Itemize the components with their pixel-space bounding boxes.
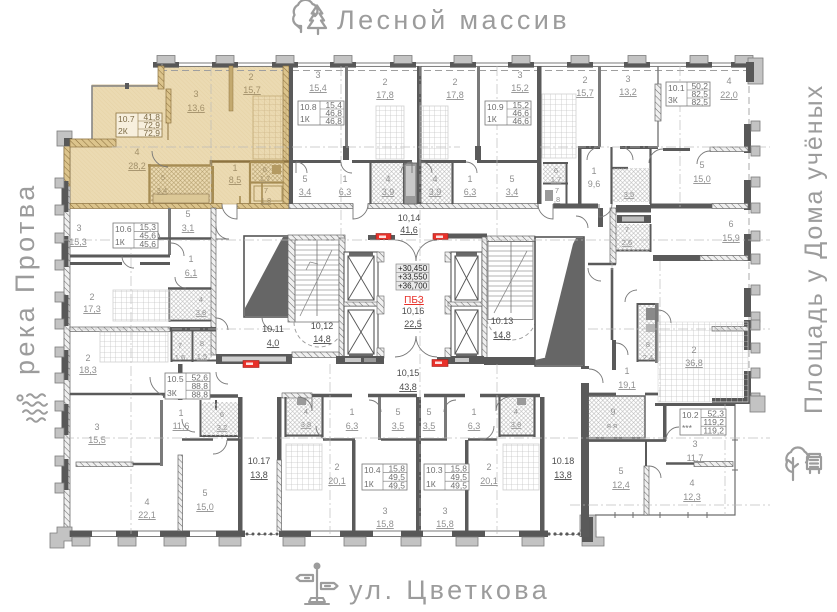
svg-text:1: 1 <box>342 174 347 184</box>
svg-text:1,7: 1,7 <box>551 175 561 184</box>
svg-text:1,7: 1,7 <box>260 174 270 183</box>
svg-text:13,8: 13,8 <box>250 470 268 480</box>
svg-text:11,7: 11,7 <box>687 453 704 463</box>
svg-text:22,1: 22,1 <box>138 510 156 520</box>
svg-text:3,1: 3,1 <box>182 223 195 233</box>
svg-text:10.1: 10.1 <box>668 83 685 93</box>
svg-text:3,8: 3,8 <box>196 308 206 317</box>
svg-text:3,5: 3,5 <box>624 190 634 199</box>
svg-text:10.13: 10.13 <box>491 316 514 326</box>
svg-text:20,1: 20,1 <box>328 476 346 486</box>
svg-text:4: 4 <box>726 76 731 86</box>
svg-text:2,6: 2,6 <box>622 238 632 247</box>
svg-text:1,5: 1,5 <box>197 352 207 361</box>
svg-text:3: 3 <box>315 70 320 80</box>
svg-text:119,2: 119,2 <box>703 426 724 436</box>
svg-text:6: 6 <box>554 166 558 175</box>
svg-text:46,8: 46,8 <box>325 116 342 126</box>
svg-text:5: 5 <box>202 488 207 498</box>
svg-text:36,8: 36,8 <box>685 358 703 368</box>
svg-text:4,0: 4,0 <box>267 338 280 348</box>
svg-text:1: 1 <box>624 366 629 376</box>
svg-text:+30,450: +30,450 <box>398 264 428 273</box>
svg-text:4: 4 <box>432 174 437 184</box>
svg-text:3: 3 <box>625 74 630 84</box>
svg-text:45,6: 45,6 <box>139 239 156 249</box>
svg-text:***: *** <box>682 423 693 433</box>
svg-text:11,6: 11,6 <box>173 421 190 431</box>
svg-text:1: 1 <box>471 407 476 417</box>
svg-text:28,2: 28,2 <box>128 161 146 171</box>
svg-text:9,6: 9,6 <box>588 179 601 189</box>
svg-text:3: 3 <box>692 439 697 449</box>
svg-text:3: 3 <box>76 223 81 233</box>
svg-text:4: 4 <box>689 478 694 488</box>
svg-text:6: 6 <box>728 219 733 229</box>
svg-text:1: 1 <box>232 163 237 173</box>
svg-text:1: 1 <box>178 408 183 418</box>
svg-text:3,8: 3,8 <box>301 420 311 429</box>
svg-text:3,4: 3,4 <box>299 187 312 197</box>
svg-text:82,5: 82,5 <box>691 97 708 107</box>
svg-text:15,0: 15,0 <box>196 502 214 512</box>
svg-text:2: 2 <box>582 75 587 85</box>
svg-text:8,5: 8,5 <box>229 175 242 185</box>
svg-text:15,2: 15,2 <box>511 83 529 93</box>
svg-text:10,15: 10,15 <box>397 368 420 378</box>
svg-text:2: 2 <box>89 292 94 302</box>
svg-text:3К: 3К <box>167 388 177 398</box>
svg-text:88,8: 88,8 <box>191 390 208 400</box>
svg-text:5: 5 <box>426 407 431 417</box>
svg-text:10.5: 10.5 <box>167 374 184 384</box>
svg-text:6,3: 6,3 <box>468 421 481 431</box>
svg-text:5: 5 <box>395 407 400 417</box>
svg-text:10,12: 10,12 <box>311 321 334 331</box>
svg-text:2: 2 <box>452 77 457 87</box>
svg-text:17,8: 17,8 <box>446 90 464 100</box>
svg-text:ул. Цветкова: ул. Цветкова <box>349 575 550 605</box>
svg-text:6,3: 6,3 <box>464 187 477 197</box>
svg-text:12,4: 12,4 <box>612 480 630 490</box>
svg-text:3,5: 3,5 <box>392 421 405 431</box>
svg-text:1: 1 <box>349 407 354 417</box>
svg-text:5: 5 <box>699 160 704 170</box>
svg-text:7: 7 <box>264 186 268 195</box>
svg-text:15,7: 15,7 <box>243 85 261 95</box>
svg-text:17,3: 17,3 <box>83 304 101 314</box>
svg-text:22,0: 22,0 <box>720 90 738 100</box>
svg-text:15,8: 15,8 <box>376 519 394 529</box>
svg-text:2: 2 <box>382 77 387 87</box>
svg-text:5: 5 <box>302 174 307 184</box>
svg-text:10.4: 10.4 <box>364 465 381 475</box>
svg-text:4: 4 <box>304 407 308 416</box>
svg-text:10.7: 10.7 <box>118 114 135 124</box>
svg-text:3: 3 <box>193 89 198 99</box>
svg-text:6: 6 <box>263 165 267 174</box>
svg-text:15,0: 15,0 <box>693 174 711 184</box>
svg-text:19,1: 19,1 <box>618 380 636 390</box>
svg-text:6,3: 6,3 <box>346 421 359 431</box>
svg-text:6,1: 6,1 <box>185 268 198 278</box>
svg-text:13,6: 13,6 <box>187 103 205 113</box>
svg-text:10.3: 10.3 <box>426 465 443 475</box>
svg-text:5: 5 <box>161 173 165 182</box>
svg-text:15,4: 15,4 <box>309 83 327 93</box>
svg-text:15,8: 15,8 <box>436 519 454 529</box>
svg-text:река Протва: река Протва <box>10 182 40 375</box>
svg-text:10.9: 10.9 <box>487 102 504 112</box>
svg-text:10.2: 10.2 <box>682 410 699 420</box>
svg-text:12,3: 12,3 <box>683 492 701 502</box>
svg-text:10,16: 10,16 <box>402 306 425 316</box>
svg-text:5: 5 <box>618 466 623 476</box>
svg-text:1,8: 1,8 <box>261 196 271 205</box>
svg-text:1К: 1К <box>115 237 125 247</box>
svg-text:10.8: 10.8 <box>300 102 317 112</box>
svg-text:15,9: 15,9 <box>722 233 740 243</box>
svg-text:3К: 3К <box>668 95 678 105</box>
svg-text:8: 8 <box>646 340 650 349</box>
svg-text:3,5: 3,5 <box>423 421 436 431</box>
svg-text:46,6: 46,6 <box>512 116 529 126</box>
svg-text:3,9: 3,9 <box>429 187 442 197</box>
svg-text:4: 4 <box>514 407 518 416</box>
svg-text:3: 3 <box>94 422 99 432</box>
svg-text:49,5: 49,5 <box>388 481 405 491</box>
svg-text:+33,550: +33,550 <box>398 273 428 282</box>
svg-text:41,6: 41,6 <box>400 225 418 235</box>
svg-text:6: 6 <box>220 410 224 419</box>
svg-text:4: 4 <box>199 295 203 304</box>
svg-text:1: 1 <box>467 174 472 184</box>
svg-text:3,2: 3,2 <box>217 423 227 432</box>
svg-text:3: 3 <box>442 506 447 516</box>
svg-text:4: 4 <box>385 174 390 184</box>
svg-text:2: 2 <box>691 345 696 355</box>
svg-text:15,3: 15,3 <box>69 237 87 247</box>
svg-text:ПБЗ: ПБЗ <box>404 295 424 306</box>
svg-text:18,3: 18,3 <box>79 365 97 375</box>
svg-text:22,5: 22,5 <box>404 319 422 329</box>
svg-text:2,4: 2,4 <box>643 353 653 362</box>
svg-text:14,8: 14,8 <box>493 330 511 340</box>
svg-text:4: 4 <box>134 147 139 157</box>
svg-text:2: 2 <box>334 462 339 472</box>
svg-text:49,5: 49,5 <box>450 481 467 491</box>
svg-text:2К: 2К <box>118 126 128 136</box>
svg-text:1К: 1К <box>364 479 374 489</box>
svg-text:10.18: 10.18 <box>552 456 575 466</box>
svg-text:3,4: 3,4 <box>506 187 519 197</box>
svg-text:2: 2 <box>486 462 491 472</box>
svg-text:7: 7 <box>178 341 182 350</box>
svg-text:10.17: 10.17 <box>248 456 271 466</box>
svg-text:7: 7 <box>625 225 629 234</box>
svg-text:Лесной массив: Лесной массив <box>337 5 570 35</box>
svg-text:я я: я я <box>607 421 617 430</box>
svg-text:1: 1 <box>591 166 596 176</box>
svg-text:3: 3 <box>382 506 387 516</box>
svg-text:1К: 1К <box>487 114 497 124</box>
svg-text:3,4: 3,4 <box>157 186 167 195</box>
svg-text:20,1: 20,1 <box>480 476 498 486</box>
svg-text:1К: 1К <box>300 114 310 124</box>
svg-text:8: 8 <box>200 339 204 348</box>
svg-text:6,3: 6,3 <box>339 187 352 197</box>
svg-text:17,8: 17,8 <box>376 90 394 100</box>
svg-text:2: 2 <box>248 72 253 82</box>
svg-text:4: 4 <box>144 497 149 507</box>
svg-text:10,14: 10,14 <box>398 213 421 223</box>
svg-text:15,5: 15,5 <box>88 435 106 445</box>
svg-text:14,8: 14,8 <box>313 334 331 344</box>
svg-text:10.6: 10.6 <box>115 224 132 234</box>
svg-text:Площадь у Дома учёных: Площадь у Дома учёных <box>800 84 828 414</box>
svg-text:13,2: 13,2 <box>619 87 637 97</box>
svg-text:3: 3 <box>517 70 522 80</box>
svg-text:1К: 1К <box>426 479 436 489</box>
svg-text:15,7: 15,7 <box>576 88 594 98</box>
svg-text:9: 9 <box>610 407 615 417</box>
svg-text:+36,700: +36,700 <box>398 281 428 290</box>
svg-text:3,9: 3,9 <box>382 187 395 197</box>
svg-text:5: 5 <box>185 209 190 219</box>
svg-text:2: 2 <box>85 353 90 363</box>
svg-text:7: 7 <box>555 186 559 195</box>
svg-text:43,8: 43,8 <box>399 382 417 392</box>
svg-text:1: 1 <box>188 254 193 264</box>
svg-text:72,9: 72,9 <box>143 128 160 138</box>
svg-text:13,8: 13,8 <box>554 470 572 480</box>
svg-text:,8: ,8 <box>554 195 560 204</box>
svg-text:5: 5 <box>509 174 514 184</box>
svg-text:10.11: 10.11 <box>262 324 284 334</box>
svg-text:1,6: 1,6 <box>175 353 185 362</box>
svg-text:3,8: 3,8 <box>511 420 521 429</box>
